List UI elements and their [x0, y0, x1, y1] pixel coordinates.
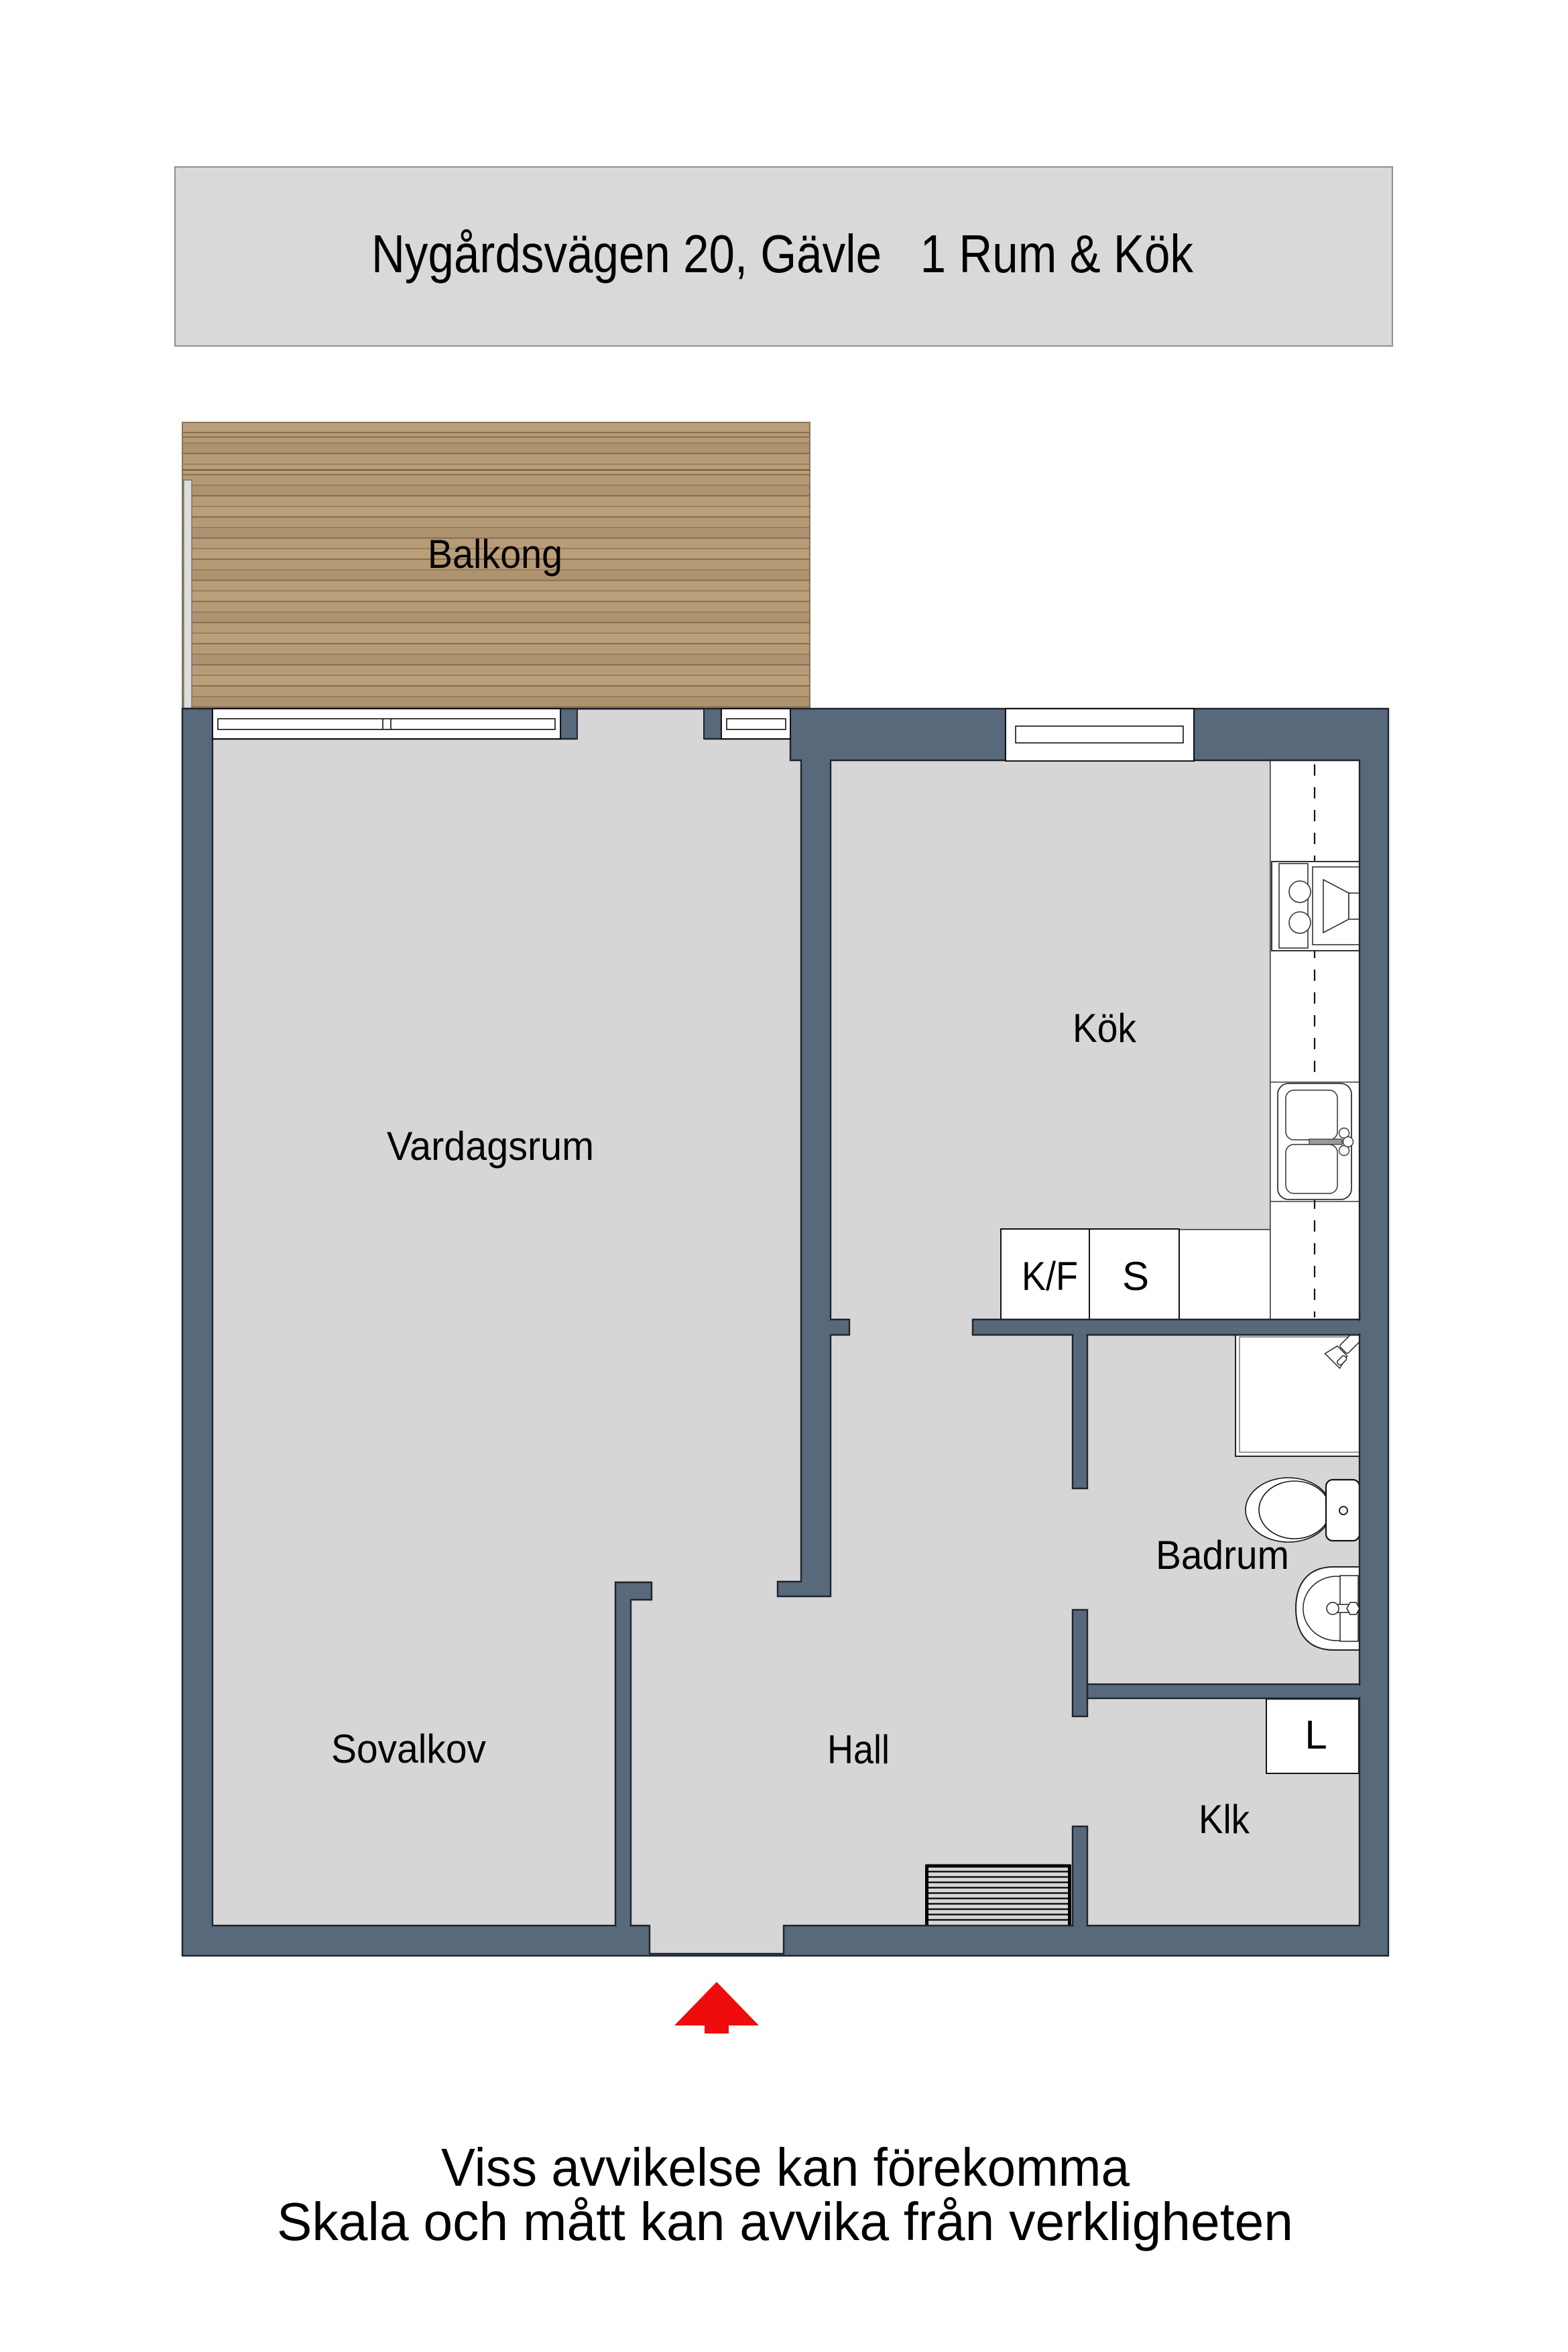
svg-text:L: L	[1305, 1712, 1327, 1757]
svg-text:Viss avvikelse kan förekomma: Viss avvikelse kan förekomma	[441, 2137, 1130, 2197]
svg-text:Hall: Hall	[827, 1727, 890, 1772]
svg-text:Klk: Klk	[1199, 1797, 1250, 1842]
svg-text:Skala och mått kan avvika från: Skala och mått kan avvika från verklighe…	[277, 2192, 1293, 2251]
svg-text:Vardagsrum: Vardagsrum	[387, 1124, 594, 1169]
svg-text:Balkong: Balkong	[428, 532, 562, 577]
svg-text:Nygårdsvägen 20, Gävle 1 Rum: Nygårdsvägen 20, Gävle 1 Rum & Kök	[371, 224, 1194, 284]
svg-text:S: S	[1122, 1254, 1149, 1299]
svg-text:K/F: K/F	[1022, 1254, 1078, 1299]
svg-text:Kök: Kök	[1073, 1006, 1137, 1051]
svg-text:Badrum: Badrum	[1156, 1533, 1289, 1578]
svg-text:Sovalkov: Sovalkov	[331, 1726, 486, 1771]
